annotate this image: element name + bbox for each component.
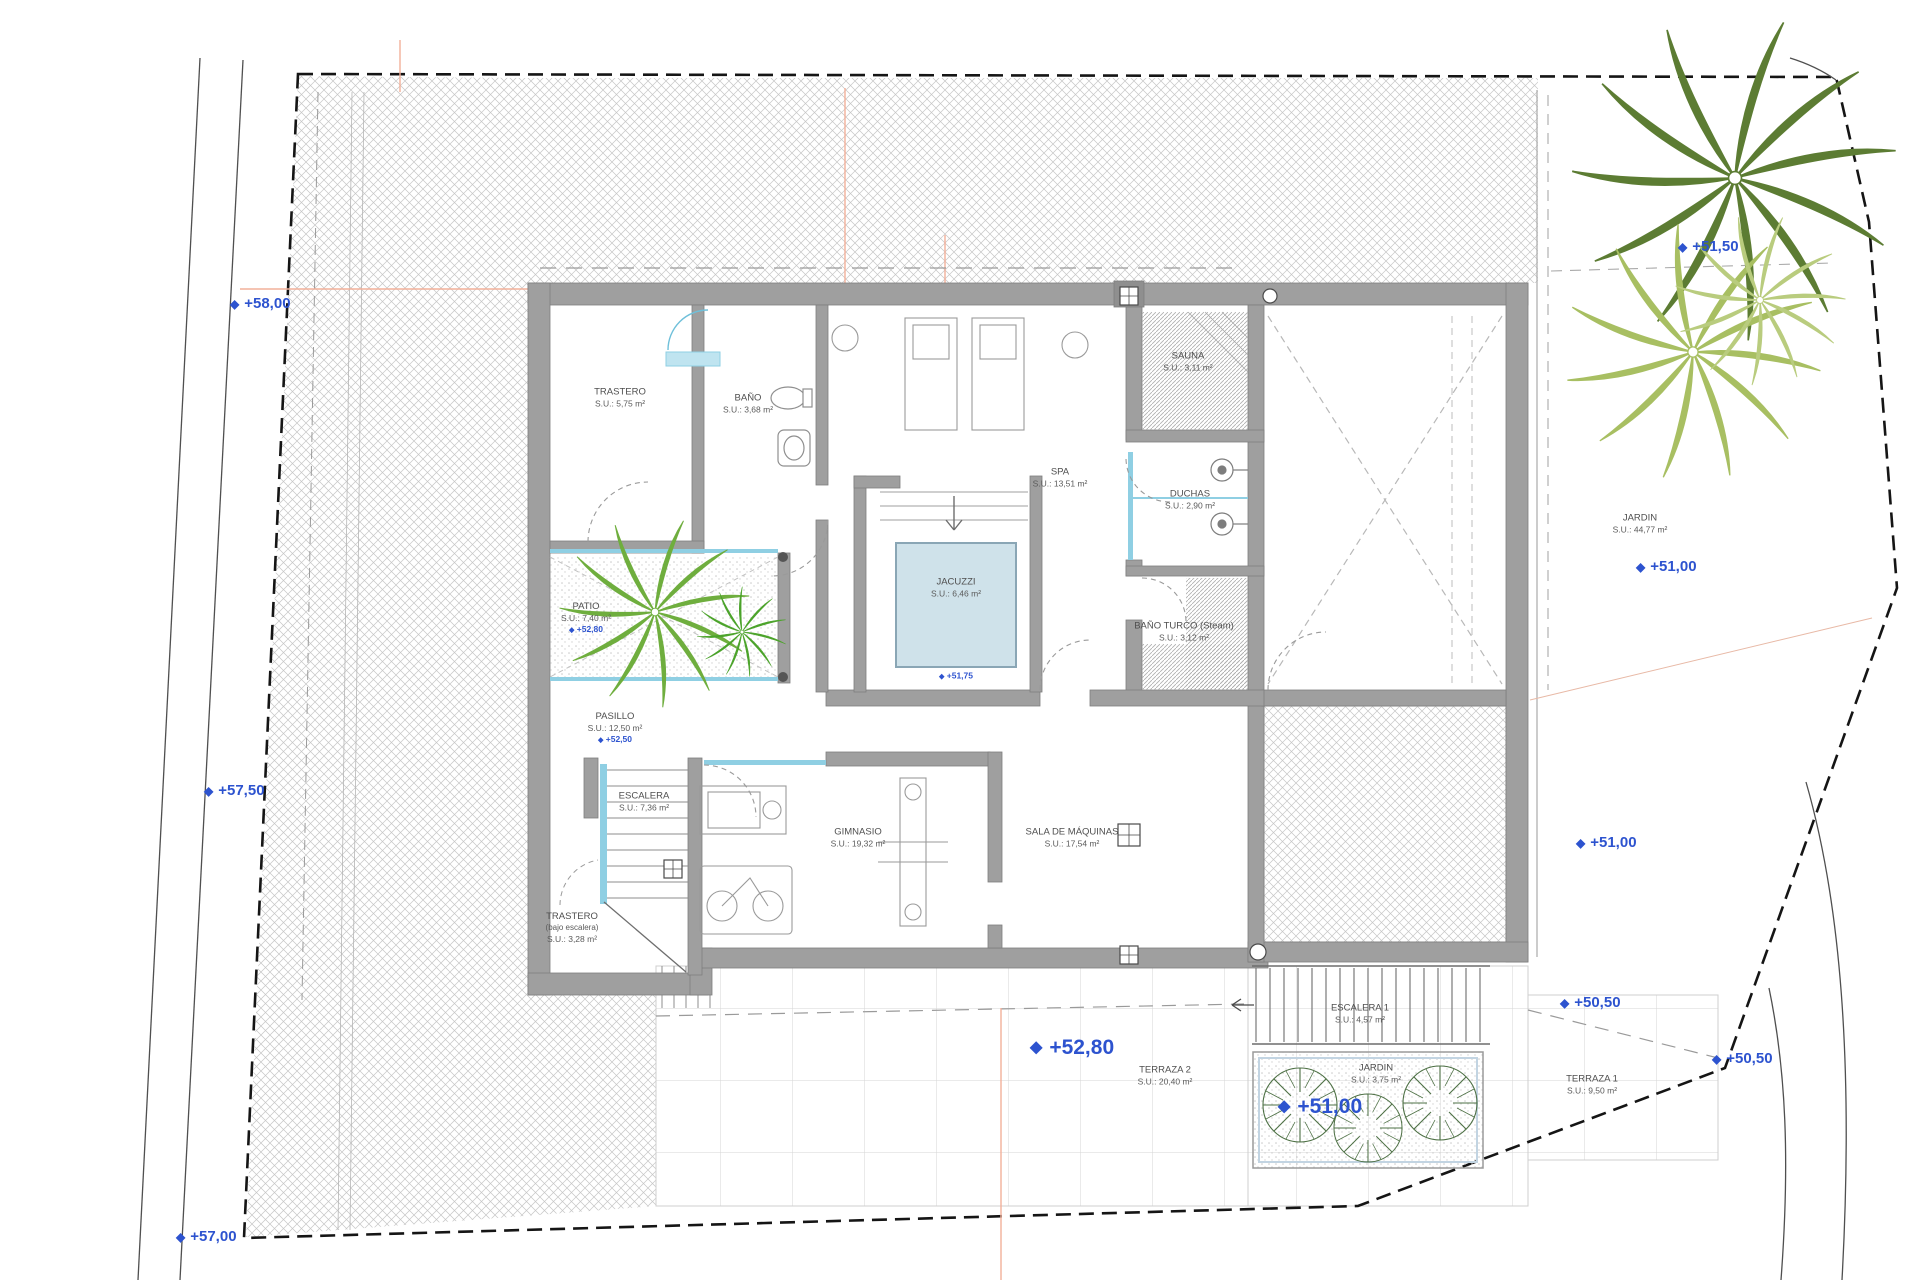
- room-label-sauna: SAUNA S.U.: 3,11 m²: [1163, 350, 1212, 373]
- room-area: S.U.: 2,90 m²: [1165, 501, 1215, 512]
- room-area: S.U.: 44,77 m²: [1613, 525, 1668, 536]
- level-marker-icon: ◆: [230, 298, 239, 310]
- room-name: DUCHAS: [1165, 488, 1215, 500]
- room-area: S.U.: 19,32 m²: [831, 839, 886, 850]
- room-subname: (bajo escalera): [546, 923, 599, 933]
- room-area: S.U.: 3,68 m²: [723, 405, 773, 416]
- level-marker-icon: ◆: [1712, 1053, 1721, 1065]
- room-area: S.U.: 3,12 m²: [1134, 633, 1234, 644]
- room-label-spa: SPA S.U.: 13,51 m²: [1033, 466, 1088, 489]
- room-label-duchas: DUCHAS S.U.: 2,90 m²: [1165, 488, 1215, 511]
- room-label-jacuzzi: JACUZZI S.U.: 6,46 m²: [931, 576, 981, 599]
- room-name: TERRAZA 2: [1138, 1064, 1193, 1076]
- floor-plan-drawing: [0, 0, 1920, 1280]
- room-name: TRASTERO: [594, 386, 646, 398]
- spa-furniture: [832, 318, 1088, 430]
- room-area: S.U.: 20,40 m²: [1138, 1077, 1193, 1088]
- room-area: S.U.: 7,36 m²: [619, 803, 670, 814]
- room-label-trastero: TRASTERO S.U.: 5,75 m²: [594, 386, 646, 409]
- level-marker-icon: ◆: [1678, 241, 1687, 253]
- elevation-marker-50-50: ◆ +50,50: [1560, 994, 1621, 1011]
- room-label-bano-turco: BAÑO TURCO (Steam) S.U.: 3,12 m²: [1134, 620, 1234, 643]
- room-area: S.U.: 6,46 m²: [931, 589, 981, 600]
- room-area: S.U.: 17,54 m²: [1026, 839, 1119, 850]
- level-marker-icon: ◆: [1560, 997, 1569, 1009]
- room-name: BAÑO TURCO (Steam): [1134, 620, 1234, 632]
- room-label-escalera-1: ESCALERA 1 S.U.: 4,57 m²: [1331, 1002, 1389, 1025]
- level-marker-icon: ◆: [1576, 837, 1585, 849]
- elevation-marker-57-50: ◆ +57,50: [204, 782, 265, 799]
- jacuzzi-level-marker: ◆ +51,75: [939, 670, 973, 681]
- level-marker-icon: ◆: [569, 627, 574, 634]
- room-name: SAUNA: [1163, 350, 1212, 362]
- room-area: S.U.: 4,57 m²: [1331, 1015, 1389, 1026]
- room-label-jardin: JARDIN S.U.: 44,77 m²: [1613, 512, 1668, 535]
- room-area: S.U.: 9,50 m²: [1566, 1086, 1618, 1097]
- room-area: S.U.: 13,51 m²: [1033, 479, 1088, 490]
- room-name: JARDIN: [1351, 1062, 1401, 1074]
- room-name: TRASTERO: [546, 911, 599, 923]
- room-name: ESCALERA: [619, 790, 670, 802]
- room-label-terraza-1: TERRAZA 1 S.U.: 9,50 m²: [1566, 1073, 1618, 1096]
- room-area: S.U.: 5,75 m²: [594, 399, 646, 410]
- elevation-marker-51-50: ◆ +51,50: [1678, 238, 1739, 255]
- room-area: S.U.: 3,28 m²: [546, 934, 599, 945]
- room-label-pasillo: PASILLO S.U.: 12,50 m² ◆ +52,50: [588, 711, 643, 745]
- elevation-marker-51-garden-low: ◆ +51,00: [1576, 834, 1637, 851]
- room-name: SALA DE MÁQUINAS: [1026, 826, 1119, 838]
- room-name: JARDIN: [1613, 512, 1668, 524]
- room-label-bano: BAÑO S.U.: 3,68 m²: [723, 392, 773, 415]
- elevation-marker-58: ◆ +58,00: [230, 295, 291, 312]
- level-marker-icon: ◆: [176, 1231, 185, 1243]
- level-marker-icon: ◆: [939, 673, 944, 680]
- bathroom-fixtures: [771, 387, 812, 466]
- room-label-escalera: ESCALERA S.U.: 7,36 m²: [619, 790, 670, 813]
- room-name: PATIO: [561, 601, 611, 613]
- level-marker-icon: ◆: [1278, 1099, 1290, 1115]
- room-label-jardin-planter: JARDIN S.U.: 3,75 m²: [1351, 1062, 1401, 1085]
- room-area: S.U.: 3,75 m²: [1351, 1075, 1401, 1086]
- floor-plan-canvas: TRASTERO S.U.: 5,75 m² BAÑO S.U.: 3,68 m…: [0, 0, 1920, 1280]
- elevation-marker-51-planter: ◆ +51,00: [1278, 1095, 1362, 1119]
- room-name: ESCALERA 1: [1331, 1002, 1389, 1014]
- room-name: BAÑO: [723, 392, 773, 404]
- elevation-marker-51-garden: ◆ +51,00: [1636, 558, 1697, 575]
- room-name: PASILLO: [588, 711, 643, 723]
- elevation-marker-57: ◆ +57,00: [176, 1228, 237, 1245]
- level-marker-icon: ◆: [1636, 561, 1645, 573]
- garden-area: [1530, 22, 1896, 957]
- room-label-sala-de-maquinas: SALA DE MÁQUINAS S.U.: 17,54 m²: [1026, 826, 1119, 849]
- room-name: SPA: [1033, 466, 1088, 478]
- elevation-marker-52-80: ◆ +52,80: [1030, 1036, 1114, 1060]
- room-label-trastero-bajo-escalera: TRASTERO (bajo escalera) S.U.: 3,28 m²: [546, 911, 599, 945]
- gym-equipment: [700, 778, 948, 934]
- room-label-terraza-2: TERRAZA 2 S.U.: 20,40 m²: [1138, 1064, 1193, 1087]
- room-name: GIMNASIO: [831, 826, 886, 838]
- level-marker-icon: ◆: [204, 785, 213, 797]
- room-label-patio: PATIO S.U.: 7,40 m² ◆ +52,80: [561, 601, 611, 635]
- level-marker-icon: ◆: [1030, 1040, 1042, 1056]
- room-name: JACUZZI: [931, 576, 981, 588]
- room-area: S.U.: 12,50 m²: [588, 723, 643, 734]
- room-area: S.U.: 3,11 m²: [1163, 363, 1212, 374]
- room-label-gimnasio: GIMNASIO S.U.: 19,32 m²: [831, 826, 886, 849]
- elevation-marker-50-50-boundary: ◆ +50,50: [1712, 1050, 1773, 1067]
- room-name: TERRAZA 1: [1566, 1073, 1618, 1085]
- room-area: S.U.: 7,40 m²: [561, 613, 611, 624]
- level-marker-icon: ◆: [598, 737, 603, 744]
